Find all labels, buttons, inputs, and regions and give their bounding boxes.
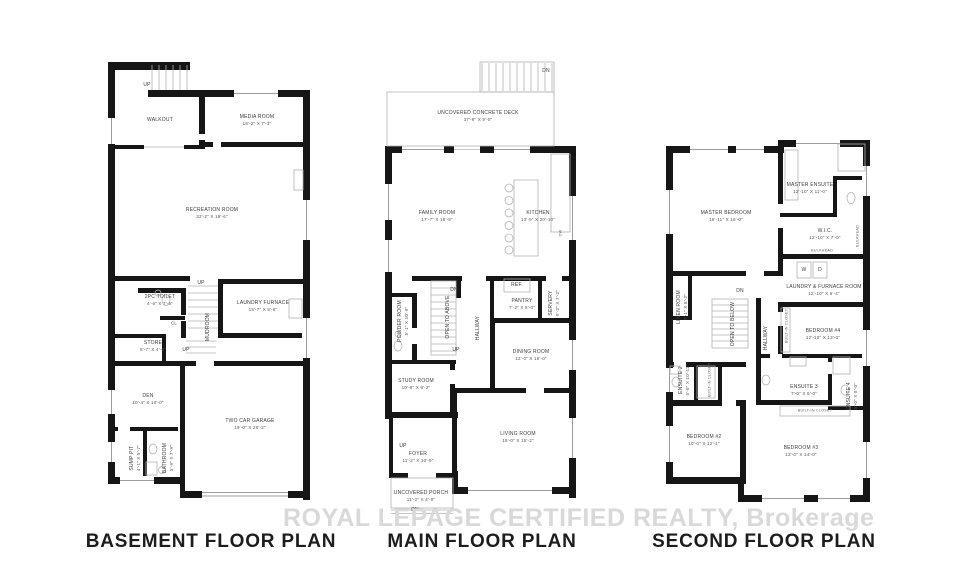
main-plan-title: MAIN FLOOR PLAN — [387, 531, 576, 553]
room-label-family-room: FAMILY ROOM17'-7" X 16'-9" — [419, 210, 455, 222]
closet-label: CL — [171, 320, 177, 325]
basement-stairs-up-store-label: UP — [182, 347, 189, 354]
main-stairs-dn-label: DN — [450, 287, 458, 294]
built-in-closet-label-b3: BUILT-IN CLOSET — [798, 409, 833, 414]
room-label-uncovered-porch: UNCOVERED PORCH11'-2" X 4'-0" — [394, 490, 448, 502]
basement-walls — [108, 62, 310, 500]
room-label-2pc-toilet: 2PC TOILET4'-6" X 7'-6" — [145, 294, 175, 306]
room-label-wic: W.I.C.12'-10" X 7'-0" — [809, 228, 840, 240]
room-label-ensuite-4: ENSUITE 45'-0" X 8'-0" — [846, 382, 858, 410]
room-label-kitchen: KITCHEN13'-9" X 20'-10" — [521, 210, 555, 222]
room-label-master-ensuite: MASTER ENSUITE12'-10" X 11'-0" — [787, 182, 834, 194]
basement-details — [144, 65, 303, 475]
room-label-ensuite-3: ENSUITE 37'-0" X 5'-0" — [790, 384, 818, 396]
foyer-stairs-up-label: UP — [399, 443, 406, 450]
basement-stairs-up-mid-label: UP — [197, 280, 204, 287]
room-label-sump-pit: SUMP PIT4'-1" X 5'-7" — [129, 445, 141, 471]
room-label-study-room: STUDY ROOM10'-9" X 9'-2" — [398, 378, 434, 390]
room-label-laundry-furnace-room: LAUNDRY & FURNACE ROOM12'-10" X 6'-4" — [786, 284, 861, 296]
built-in-closet-label-b2: BUILT-IN CLOSET — [708, 363, 713, 398]
room-label-bedroom-2: BEDROOM #210'-0" X 12'-1" — [687, 434, 722, 446]
second-floor-walls — [666, 140, 870, 502]
basement-plan-title: BASEMENT FLOOR PLAN — [86, 531, 337, 553]
room-label-hallway-main: HALLWAY — [475, 316, 482, 340]
room-label-living-room: LIVING ROOM16'-0" X 15'-2" — [500, 431, 536, 443]
built-in-closet-label-b4: BUILT-IN CLOSET — [785, 309, 790, 344]
room-label-media-room: MEDIA ROOM16'-2" X 7'-3" — [240, 114, 275, 126]
open-to-below-label: OPEN TO BELOW — [730, 302, 737, 346]
open-to-above-label: OPEN TO ABOVE — [445, 295, 452, 338]
room-label-pantry: PANTRY7'-2" X 8'-0" — [509, 298, 535, 310]
room-label-linen-room: LINEN ROOM2'-1" X 8'-2" — [676, 290, 688, 324]
room-label-powder-room: POWDER ROOM5'-1" X 10'-9" — [397, 300, 409, 342]
room-label-bedroom-3: BEDROOM #313'-0" X 14'-0" — [784, 445, 819, 457]
deck-stairs-dn-label: DN — [542, 68, 550, 75]
second-floor-openings — [665, 139, 871, 503]
room-label-laundry-furnace: LAUNDRY FURNACE15'-7" X 8'-6" — [237, 300, 289, 312]
bulkhead-label-a: BULKHEAD — [811, 249, 833, 254]
room-label-bathroom: BATHROOM5'-9" X 7'-9" — [162, 443, 174, 473]
second-plan-title: SECOND FLOOR PLAN — [652, 531, 876, 553]
room-label-walkout: WALKOUT — [147, 117, 173, 124]
room-label-uncovered-concrete-deck: UNCOVERED CONCRETE DECK37'-9" X 9'-0" — [437, 110, 518, 122]
room-label-store: STORE5'-7" X 4'-0" — [140, 340, 166, 352]
room-label-bedroom-4: BEDROOM #412'-10" X 13'-0" — [806, 328, 841, 340]
room-label-hallway-second: HALLWAY — [763, 326, 770, 350]
second-stairs-dn-label: DN — [736, 288, 744, 295]
bulkhead-label-b: BULKHEAD — [856, 225, 861, 247]
dryer-label: D — [818, 267, 822, 274]
room-label-ensuite-2: ENSUITE 25'-0" X 10'-11" — [678, 364, 690, 395]
main-floor-details — [387, 62, 570, 514]
basement-openings — [107, 89, 311, 499]
fridge-label: REF. — [511, 282, 523, 289]
washer-label: W — [802, 267, 807, 274]
room-label-foyer: FOYER11'-2" X 10'-9" — [402, 451, 433, 463]
room-label-servery: SERVERY5'-2" X 7'-2" — [548, 290, 560, 316]
room-label-dining-room: DINING ROOM12'-0" X 16'-0" — [513, 349, 550, 361]
room-label-mudroom: MUDROOM — [205, 313, 212, 341]
room-label-two-car-garage: TWO CAR GARAGE19'-0" X 20'-2" — [225, 418, 274, 430]
floorplan-sheet: UP WALKOUT MEDIA ROOM16'-2" X 7'-3" RECR… — [0, 0, 963, 585]
room-label-master-bedroom: MASTER BEDROOM16'-11" X 16'-0" — [701, 210, 752, 222]
main-stairs-up-label: UP — [452, 347, 459, 354]
brokerage-watermark: ROYAL LEPAGE CERTIFIED REALTY, Brokerage — [283, 504, 874, 533]
room-label-den: DEN10'-4" X 10'-0" — [132, 393, 163, 405]
room-label-recreation-room: RECREATION ROOM32'-2" X 19'-6" — [186, 207, 238, 219]
dishwasher-label: DW — [559, 230, 564, 237]
basement-stairs-up-label: UP — [143, 82, 150, 89]
